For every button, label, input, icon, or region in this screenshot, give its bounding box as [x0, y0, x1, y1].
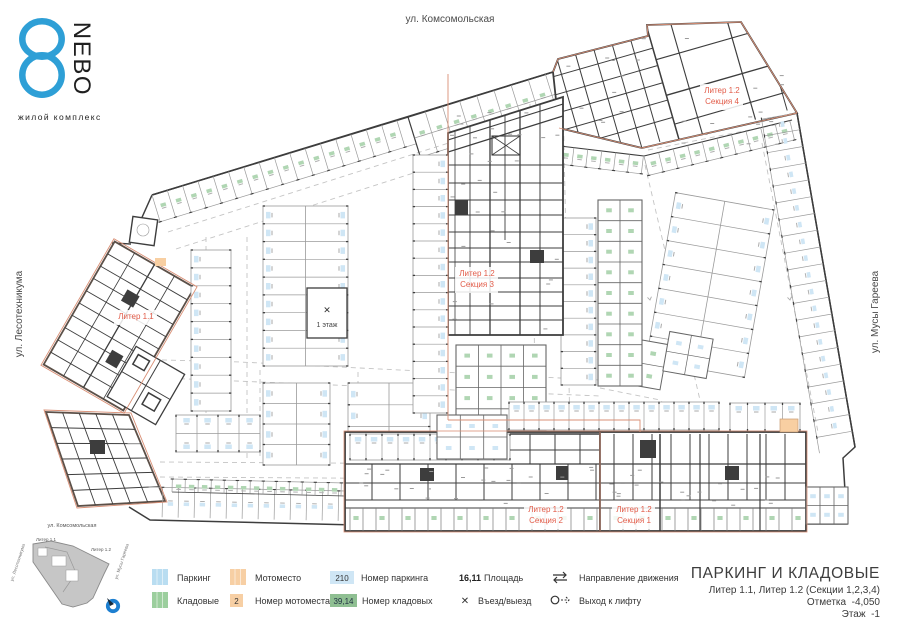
svg-text:ул. Мусы Гареева: ул. Мусы Гареева — [870, 270, 881, 353]
svg-text:Площадь: Площадь — [484, 573, 523, 583]
svg-text:Кладовые: Кладовые — [177, 596, 219, 606]
svg-text:Отметка -4,050: Отметка -4,050 — [807, 597, 881, 608]
svg-text:Направление движения: Направление движения — [579, 573, 679, 583]
svg-text:Секция 2: Секция 2 — [529, 516, 563, 525]
svg-text:16,11: 16,11 — [459, 573, 481, 583]
svg-text:жилой комплекс: жилой комплекс — [18, 112, 102, 122]
svg-text:Паркинг: Паркинг — [177, 573, 211, 583]
svg-text:Литер 1.2: Литер 1.2 — [616, 505, 652, 514]
svg-text:Номер паркинга: Номер паркинга — [361, 573, 428, 583]
svg-text:✕: ✕ — [461, 596, 469, 607]
svg-text:39,14: 39,14 — [333, 597, 354, 606]
svg-text:Выход к лифту: Выход к лифту — [579, 596, 642, 606]
svg-text:Номер кладовых: Номер кладовых — [362, 596, 433, 606]
svg-text:✕: ✕ — [323, 305, 331, 315]
svg-text:Литер 1.1: Литер 1.1 — [36, 537, 56, 542]
svg-text:210: 210 — [335, 574, 349, 583]
svg-text:Въезд/выезд: Въезд/выезд — [478, 596, 532, 606]
svg-text:1 этаж: 1 этаж — [317, 322, 338, 329]
svg-text:Секция 4: Секция 4 — [705, 97, 739, 106]
svg-text:Номер мотоместа: Номер мотоместа — [255, 596, 330, 606]
svg-text:ул. Комсомольская: ул. Комсомольская — [406, 14, 495, 25]
svg-text:Литер 1.1, Литер 1.2 (Секции 1: Литер 1.1, Литер 1.2 (Секции 1,2,3,4) — [709, 585, 880, 596]
svg-text:ПАРКИНГ И КЛАДОВЫЕ: ПАРКИНГ И КЛАДОВЫЕ — [691, 565, 880, 582]
svg-text:Этаж -1: Этаж -1 — [842, 609, 881, 620]
svg-text:Секция 3: Секция 3 — [460, 280, 494, 289]
svg-text:Литер 1.2: Литер 1.2 — [459, 269, 495, 278]
svg-text:Литер 1.2: Литер 1.2 — [528, 505, 564, 514]
svg-text:ул. Лесотехникума: ул. Лесотехникума — [14, 270, 25, 357]
svg-text:Мотоместо: Мотоместо — [255, 573, 301, 583]
svg-text:Секция 1: Секция 1 — [617, 516, 651, 525]
svg-text:2: 2 — [234, 597, 239, 606]
svg-text:Литер 1.2: Литер 1.2 — [91, 547, 111, 552]
svg-text:Литер 1.2: Литер 1.2 — [704, 86, 740, 95]
svg-text:Литер 1.1: Литер 1.1 — [118, 312, 154, 321]
svg-text:NEBO: NEBO — [68, 22, 95, 96]
svg-text:ул. Комсомольская: ул. Комсомольская — [48, 523, 97, 529]
